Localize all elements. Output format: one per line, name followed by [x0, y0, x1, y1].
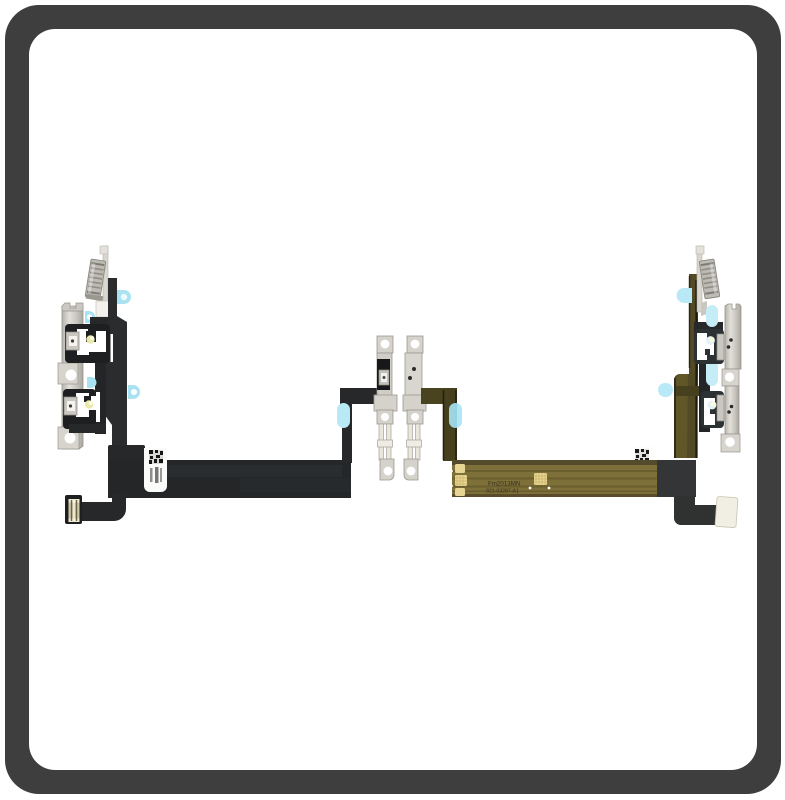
svg-text:921-03287-A1: 921-03287-A1: [486, 489, 519, 495]
svg-text:Fm2013MN: Fm2013MN: [488, 481, 520, 488]
